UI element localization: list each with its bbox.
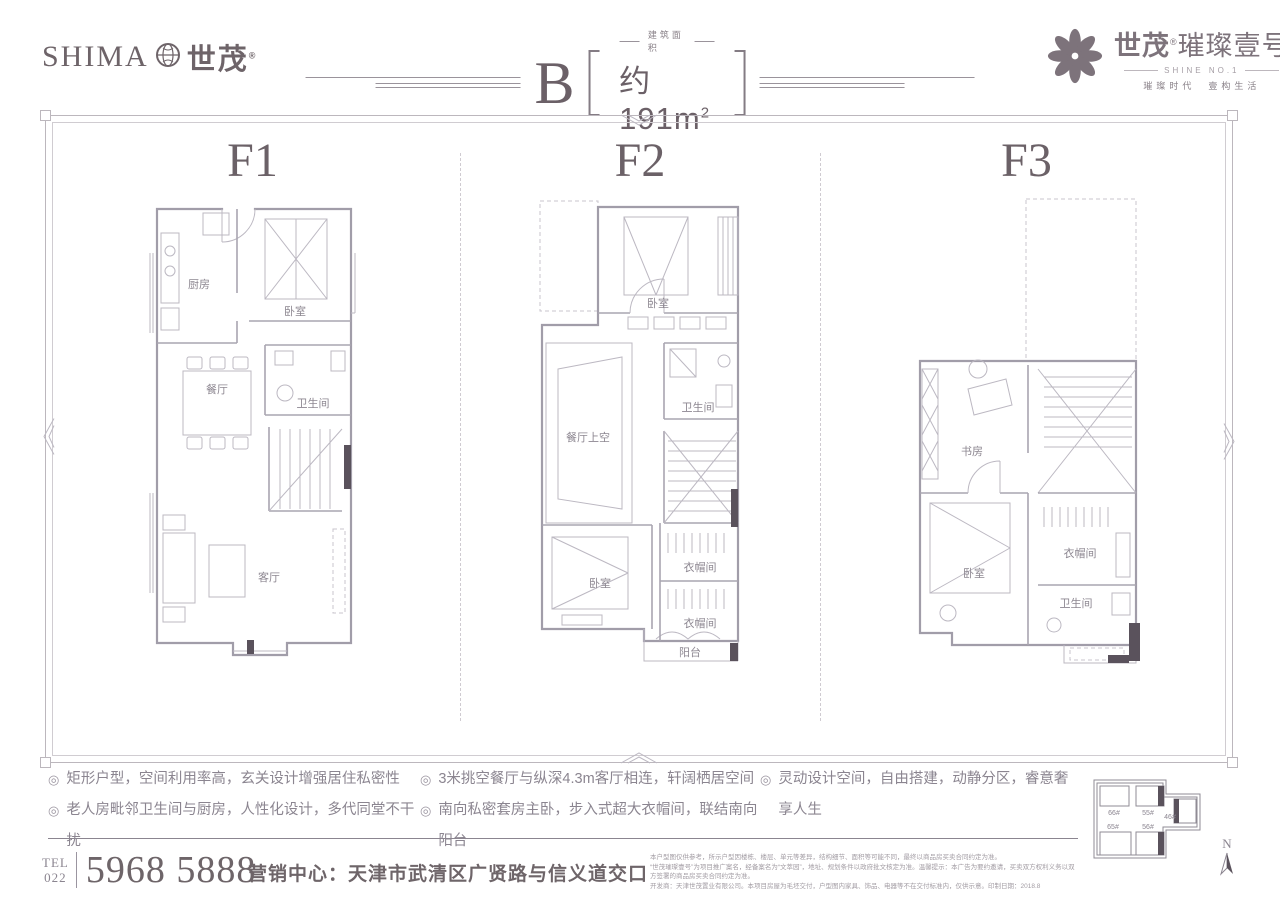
area-label: 建筑面积 (648, 28, 686, 54)
bullet-icon: ◎ (48, 764, 59, 795)
chevron-ornament-bottom (619, 746, 659, 765)
phone-block: TEL 022 5968 5888 (42, 850, 256, 890)
feature-text: 矩形户型，空间利用率高，玄关设计增强居住私密性 (66, 764, 400, 795)
room-label: 衣帽间 (1063, 546, 1096, 560)
building-label: 65# (1107, 824, 1119, 831)
feature-item: ◎南向私密套房主卧，步入式超大衣帽间，联结南向阳台 (420, 795, 760, 857)
floorplan-f1: 厨房 卧室 卫生间 餐厅 (137, 193, 369, 674)
floor-label-f3: F3 (1001, 135, 1052, 187)
flower-icon (1046, 27, 1104, 90)
tel-separator (76, 852, 77, 888)
bullet-icon: ◎ (48, 795, 59, 826)
room-label: 卫生间 (682, 400, 715, 414)
plans-frame: F1 厨房 (45, 115, 1233, 763)
project-name: 世茂®璀璨壹号 (1114, 24, 1280, 63)
room-label: 客厅 (258, 570, 280, 584)
globe-icon (155, 42, 181, 73)
feature-item: ◎老人房毗邻卫生间与厨房，人性化设计，多代同堂不干扰 (48, 795, 420, 857)
room-label: 衣帽间 (684, 560, 717, 574)
unit-letter: B (535, 53, 575, 113)
frame-corner (40, 110, 51, 121)
shimao-logo-cn: 世茂® (187, 36, 258, 78)
feature-list: ◎矩形户型，空间利用率高，玄关设计增强居住私密性 ◎老人房毗邻卫生间与厨房，人性… (48, 764, 1080, 857)
disclaimer-line: 本户型图仅供参考，所示户型因楼栋、楼层、单元等差异，结构细节、面积等可能不同，最… (650, 853, 1078, 863)
room-label: 卧室 (963, 566, 985, 580)
footer-divider (48, 838, 1078, 839)
shimao-logo-text: SHIMA (42, 40, 149, 74)
tel-area-code: 022 (44, 870, 67, 885)
room-label: 卧室 (284, 304, 306, 318)
room-label: 衣帽间 (684, 616, 717, 630)
feature-item: ◎矩形户型，空间利用率高，玄关设计增强居住私密性 (48, 764, 420, 795)
shimao-logo: SHIMA 世茂® (42, 36, 257, 78)
bullet-icon: ◎ (420, 764, 431, 795)
room-label: 阳台 (679, 645, 701, 659)
deco-lines-left (306, 77, 521, 88)
bullet-icon: ◎ (760, 764, 771, 795)
feature-item: ◎灵动设计空间，自由搭建，动静分区，睿意奢享人生 (760, 764, 1080, 826)
compass-n-label: N (1216, 836, 1238, 852)
floor-label-f2: F2 (615, 135, 666, 187)
feature-text: 老人房毗邻卫生间与厨房，人性化设计，多代同堂不干扰 (66, 795, 420, 857)
floor-column-f3: F3 书房 (820, 135, 1233, 674)
compass-arrow-icon (1219, 852, 1235, 876)
chevron-ornament-top (619, 113, 659, 132)
building-label: 46# (1164, 814, 1176, 821)
floor-column-f1: F1 厨房 (45, 135, 460, 674)
building-label: 66# (1108, 810, 1120, 817)
feature-text: 南向私密套房主卧，步入式超大衣帽间，联结南向阳台 (438, 795, 760, 857)
feature-text: 3米挑空餐厅与纵深4.3m客厅相连，轩阔栖居空间 (438, 764, 754, 795)
floorplan-poster: SHIMA 世茂® B 建筑面积 约191m2 (0, 0, 1280, 905)
feature-text: 灵动设计空间，自由搭建，动静分区，睿意奢享人生 (778, 764, 1080, 826)
floorplan-f2: 卧室 卫生间 餐厅上空 (532, 193, 748, 674)
bracket-right (735, 50, 746, 116)
disclaimer: 本户型图仅供参考，所示户型因楼栋、楼层、单元等差异，结构细节、面积等可能不同，最… (650, 853, 1078, 891)
project-name-en: SHINE NO.1 (1124, 66, 1279, 75)
building-label: 55# (1142, 810, 1154, 817)
room-label: 餐厅 (206, 382, 228, 396)
bracket-left (589, 50, 600, 116)
bullet-icon: ◎ (420, 795, 431, 826)
room-label: 卧室 (589, 576, 611, 590)
feature-item: ◎3米挑空餐厅与纵深4.3m客厅相连，轩阔栖居空间 (420, 764, 760, 795)
shine-no1-logo: 世茂®璀璨壹号 SHINE NO.1 璀璨时代 壹构生活 (1046, 24, 1280, 92)
room-label: 卧室 (647, 296, 669, 310)
phone-number: 5968 5888 (86, 850, 257, 890)
disclaimer-line: “世茂璀璨壹号”为项目推广案名，经备案名为“文萃园”，地址、规划条件以政府批文核… (650, 863, 1078, 882)
tel-label: TEL (42, 855, 69, 870)
frame-corner (1227, 110, 1238, 121)
room-label: 卫生间 (1059, 596, 1092, 610)
room-label: 厨房 (188, 278, 210, 291)
deco-lines-right (759, 77, 974, 88)
sales-center-address: 营销中心：天津市武清区广贤路与信义道交口 (248, 859, 648, 886)
north-compass: N (1216, 836, 1238, 881)
disclaimer-line: 开发商：天津世茂置业有限公司。本项目房屋为毛坯交付，户型图内家具、饰品、电器等不… (650, 882, 1078, 892)
project-tagline: 璀璨时代 壹构生活 (1143, 79, 1260, 92)
room-label: 餐厅上空 (566, 430, 610, 444)
floor-column-f2: F2 卧室 (460, 135, 820, 674)
room-label: 卫生间 (296, 396, 329, 410)
floor-label-f1: F1 (227, 135, 278, 187)
site-keyplan: 66# 55# 46# 65# 56# (1086, 772, 1212, 869)
frame-corner (1227, 757, 1238, 768)
building-label: 56# (1142, 824, 1154, 831)
floorplan-f3: 书房 卧室 衣帽间 卫生间 (908, 193, 1146, 674)
room-label: 书房 (961, 445, 983, 458)
